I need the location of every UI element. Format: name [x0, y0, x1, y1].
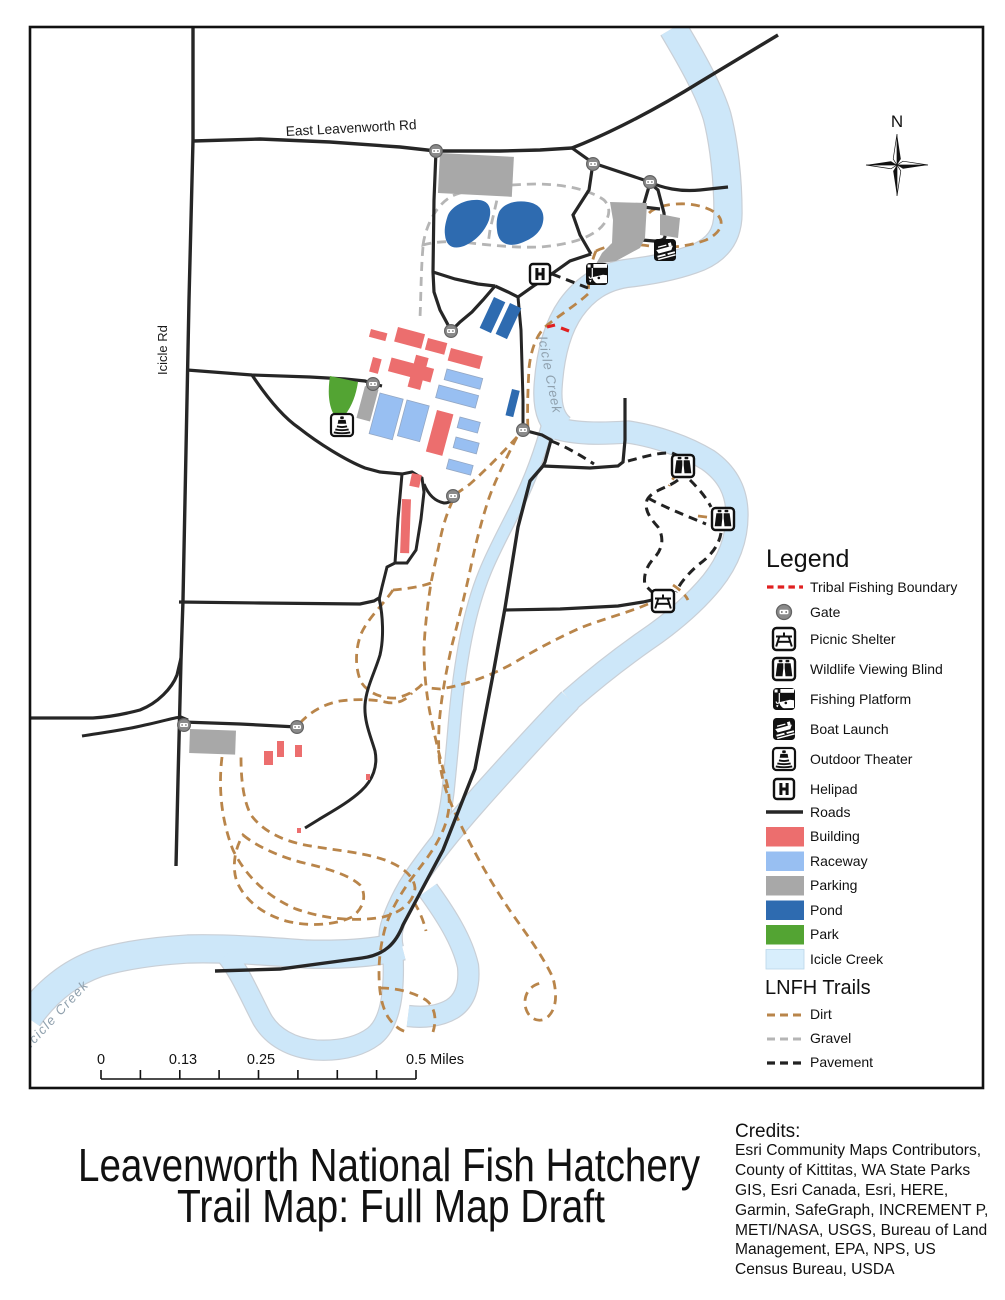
svg-text:County of Kittitas, WA State P: County of Kittitas, WA State Parks — [735, 1162, 970, 1179]
svg-text:0.25: 0.25 — [247, 1052, 275, 1068]
svg-text:Building: Building — [810, 828, 860, 844]
svg-text:Gravel: Gravel — [810, 1030, 851, 1046]
svg-text:Credits:: Credits: — [735, 1121, 800, 1142]
svg-text:GIS, Esri Canada, Esri, HERE,: GIS, Esri Canada, Esri, HERE, — [735, 1182, 948, 1199]
svg-text:LNFH Trails: LNFH Trails — [765, 977, 871, 999]
svg-text:Wildlife Viewing Blind: Wildlife Viewing Blind — [810, 661, 943, 677]
svg-text:Raceway: Raceway — [810, 853, 868, 869]
svg-text:Outdoor Theater: Outdoor Theater — [810, 751, 913, 767]
svg-text:Census Bureau, USDA: Census Bureau, USDA — [735, 1261, 895, 1278]
svg-text:Picnic Shelter: Picnic Shelter — [810, 631, 896, 647]
svg-text:0.5 Miles: 0.5 Miles — [406, 1052, 464, 1068]
svg-text:0: 0 — [97, 1052, 105, 1068]
svg-text:Helipad: Helipad — [810, 781, 857, 797]
svg-text:Esri Community Maps Contributo: Esri Community Maps Contributors, — [735, 1142, 981, 1159]
svg-text:Park: Park — [810, 926, 840, 942]
svg-text:Gate: Gate — [810, 604, 841, 620]
svg-text:Icicle Creek: Icicle Creek — [810, 951, 884, 967]
svg-text:0.13: 0.13 — [169, 1052, 197, 1068]
svg-text:Garmin, SafeGraph, INCREMENT P: Garmin, SafeGraph, INCREMENT P, — [735, 1202, 988, 1219]
svg-text:Icicle Rd: Icicle Rd — [155, 325, 170, 375]
svg-text:Boat Launch: Boat Launch — [810, 721, 889, 737]
svg-text:Dirt: Dirt — [810, 1006, 832, 1022]
svg-text:Roads: Roads — [810, 804, 850, 820]
svg-text:Fishing Platform: Fishing Platform — [810, 691, 911, 707]
svg-text:Tribal Fishing Boundary: Tribal Fishing Boundary — [810, 579, 957, 595]
svg-text:Trail Map: Full Map Draft: Trail Map: Full Map Draft — [177, 1180, 605, 1232]
svg-text:Management, EPA, NPS, US: Management, EPA, NPS, US — [735, 1241, 936, 1258]
svg-text:Parking: Parking — [810, 877, 857, 893]
svg-text:Legend: Legend — [766, 545, 849, 573]
svg-text:METI/NASA, USGS, Bureau of Lan: METI/NASA, USGS, Bureau of Land — [735, 1222, 987, 1239]
svg-text:Pavement: Pavement — [810, 1054, 873, 1070]
svg-text:N: N — [891, 112, 903, 131]
svg-text:Pond: Pond — [810, 902, 843, 918]
